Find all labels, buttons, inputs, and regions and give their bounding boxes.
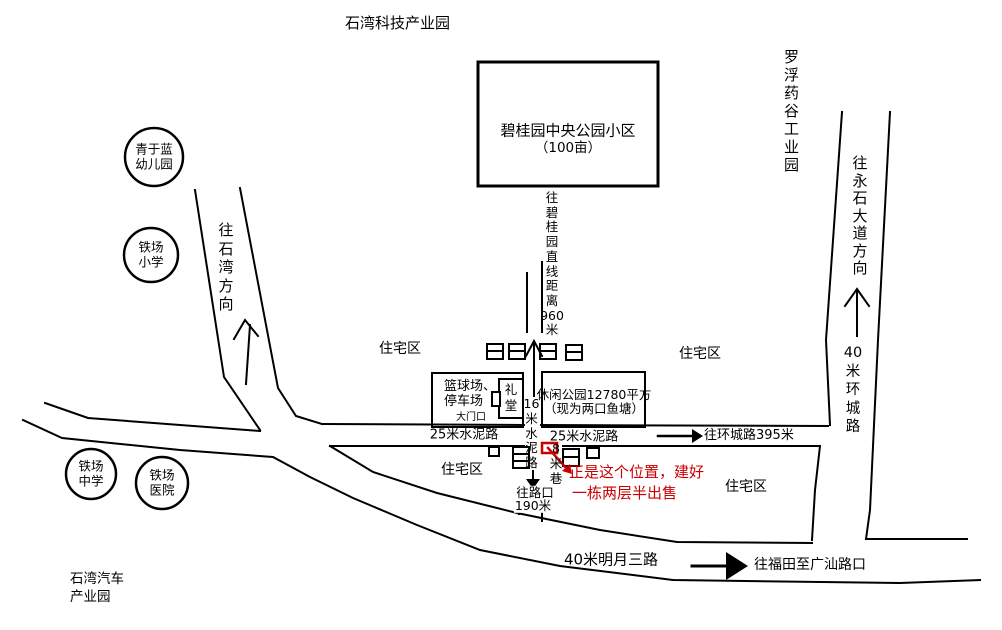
building-icon — [489, 447, 499, 456]
label-line: 铁场 — [149, 469, 174, 484]
label-basketball-line2: 停车场 — [444, 395, 483, 410]
road-edge — [826, 112, 842, 425]
label-ring-road: 40米环城路 — [845, 344, 861, 437]
road-edge — [45, 403, 260, 431]
label-bgy-area: （100亩） — [535, 141, 601, 157]
building-icon — [509, 344, 525, 359]
label-line: 青于蓝 — [135, 143, 173, 158]
label-line: 幼儿园 — [135, 157, 173, 172]
label-line: 铁场 — [138, 241, 163, 256]
arrow-head — [234, 320, 258, 339]
label-to-intersection-dist: 190米 — [514, 499, 552, 513]
label-line: 铁场 — [78, 460, 103, 475]
building-icon — [566, 345, 582, 360]
label-mingyue-road: 40米明月三路 — [564, 551, 658, 568]
road-edge — [866, 112, 890, 539]
label-alley8: 8米巷 — [549, 441, 563, 486]
label-hospital: 铁场 医院 — [149, 469, 174, 498]
label-hall: 礼堂 — [503, 382, 519, 413]
label-basketball-line1: 篮球场、 — [444, 380, 496, 395]
building-icon — [587, 448, 599, 458]
label-residential-3: 住宅区 — [441, 462, 483, 478]
label-residential-2: 住宅区 — [679, 346, 721, 362]
right-arrow-to-ring — [658, 429, 703, 443]
up-arrow-ring-road — [845, 289, 869, 336]
label-residential-1: 住宅区 — [379, 341, 421, 357]
up-arrow-shiwan-road — [234, 320, 258, 384]
label-to-shiwan: 往石湾方向 — [218, 221, 234, 314]
landmark-circles — [66, 128, 188, 509]
arrow-head — [692, 429, 703, 443]
arrow-shaft — [246, 325, 250, 384]
label-auto-park-line1: 石湾汽车 — [70, 572, 124, 588]
label-residential-4: 住宅区 — [725, 479, 767, 495]
label-line: 医院 — [149, 483, 174, 498]
label-line: 小学 — [138, 255, 163, 270]
map-linework — [0, 0, 1002, 630]
label-luofu-park: 罗浮药谷工业园 — [784, 48, 799, 174]
label-kindergarten: 青于蓝 幼儿园 — [135, 143, 173, 172]
label-tech-park: 石湾科技产业园 — [345, 15, 450, 32]
road-edge — [240, 188, 322, 424]
label-primary-school: 铁场 小学 — [138, 241, 163, 270]
label-cement25-left: 25米水泥路 — [430, 429, 499, 444]
arrow-head — [726, 552, 748, 580]
label-line: 中学 — [78, 474, 103, 489]
hand-drawn-location-map: 石湾科技产业园 碧桂园中央公园小区 （100亩） 住宅区 住宅区 住宅区 住宅区… — [0, 0, 1002, 630]
building-icon — [487, 344, 503, 359]
label-auto-park-line2: 产业园 — [70, 590, 111, 606]
road-to-shiwan — [195, 188, 322, 430]
label-to-yongshi: 往永石大道方向 — [852, 155, 868, 278]
label-main-gate: 大门口 — [456, 412, 486, 424]
road-edge — [322, 424, 524, 425]
label-to-ring-road: 往环城路395米 — [704, 429, 794, 444]
label-leisure-park-line2: （现为两口鱼塘） — [544, 402, 644, 416]
label-bgy-distance: 往碧桂园直线距离960米 — [545, 191, 559, 338]
label-cement16: 16米水泥路 — [524, 397, 539, 471]
road-edge — [541, 425, 828, 426]
label-highlight-line1: 正是这个位置，建好 — [569, 464, 704, 481]
label-bgy-estate: 碧桂园中央公园小区 — [500, 122, 635, 139]
label-middle-school: 铁场 中学 — [78, 460, 103, 489]
label-highlight-line2: 一栋两层半出售 — [572, 485, 677, 502]
right-arrow-to-futian — [692, 552, 748, 580]
label-to-futian: 往福田至广汕路口 — [754, 557, 866, 573]
road-ring — [812, 112, 890, 540]
road-edge — [812, 446, 820, 540]
